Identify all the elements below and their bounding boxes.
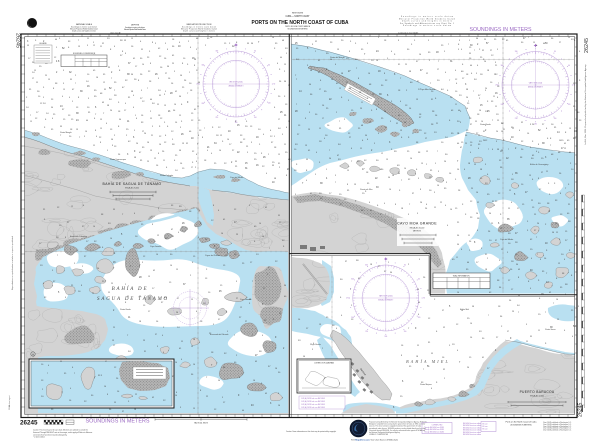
svg-text:13: 13 <box>416 99 418 101</box>
svg-text:56: 56 <box>552 232 554 234</box>
svg-text:18: 18 <box>468 163 470 165</box>
svg-text:14: 14 <box>484 61 486 63</box>
svg-text:3: 3 <box>335 175 336 177</box>
svg-text:18: 18 <box>134 409 136 411</box>
svg-text:50: 50 <box>309 84 311 86</box>
svg-text:16: 16 <box>85 131 87 133</box>
svg-text:25: 25 <box>465 143 467 145</box>
svg-text:60: 60 <box>268 64 270 66</box>
svg-text:29: 29 <box>512 311 514 313</box>
svg-text:20: 20 <box>144 133 146 135</box>
svg-text:3: 3 <box>438 171 439 173</box>
svg-text:58: 58 <box>480 169 482 171</box>
svg-text:90: 90 <box>423 298 425 300</box>
svg-text:7: 7 <box>335 182 336 184</box>
svg-text:Cayo Moa Grande: Cayo Moa Grande <box>420 89 435 91</box>
svg-text:58: 58 <box>274 178 276 180</box>
svg-text:26245: 26245 <box>584 38 590 53</box>
svg-text:8: 8 <box>395 204 396 206</box>
svg-text:11: 11 <box>468 235 470 237</box>
svg-text:Soundings in meters scale datu: Soundings in meters scale datum <box>403 24 452 27</box>
svg-text:57: 57 <box>507 331 509 333</box>
svg-text:32: 32 <box>482 50 484 52</box>
svg-text:5: 5 <box>107 150 108 152</box>
svg-text:13: 13 <box>337 49 339 51</box>
svg-text:11: 11 <box>360 148 362 150</box>
svg-text:26245: 26245 <box>15 33 21 48</box>
svg-text:6: 6 <box>178 232 179 234</box>
svg-text:10: 10 <box>219 150 221 152</box>
svg-text:3: 3 <box>152 126 153 128</box>
svg-text:37: 37 <box>155 334 157 336</box>
svg-text:16: 16 <box>368 73 370 75</box>
svg-text:PORTS ON THE NORTH COAST OF CU: PORTS ON THE NORTH COAST OF CUBA <box>252 20 350 26</box>
svg-text:32: 32 <box>264 320 266 322</box>
svg-text:15: 15 <box>100 128 102 130</box>
svg-text:11: 11 <box>503 129 505 131</box>
svg-text:48: 48 <box>361 125 363 127</box>
svg-text:40: 40 <box>470 65 472 67</box>
svg-text:18: 18 <box>417 289 419 291</box>
svg-text:2: 2 <box>315 51 316 53</box>
svg-text:30: 30 <box>284 285 286 287</box>
svg-text:29: 29 <box>147 161 149 163</box>
svg-text:37: 37 <box>177 298 179 300</box>
svg-text:240: 240 <box>201 103 204 105</box>
svg-text:26245: 26245 <box>20 420 38 427</box>
svg-text:2: 2 <box>322 348 323 350</box>
svg-text:46: 46 <box>404 122 406 124</box>
svg-text:40: 40 <box>150 99 152 101</box>
svg-text:36: 36 <box>457 244 459 246</box>
svg-text:17: 17 <box>191 167 193 169</box>
svg-text:120: 120 <box>268 103 271 105</box>
svg-text:8: 8 <box>125 53 126 55</box>
svg-text:10: 10 <box>437 185 439 187</box>
svg-text:6: 6 <box>564 259 565 261</box>
svg-text:29: 29 <box>360 108 362 110</box>
svg-text:6: 6 <box>572 336 573 338</box>
svg-text:12: 12 <box>71 206 73 208</box>
svg-text:8: 8 <box>420 189 421 191</box>
svg-text:14: 14 <box>93 226 95 228</box>
svg-text:35: 35 <box>530 336 532 338</box>
svg-text:4: 4 <box>531 258 532 260</box>
svg-text:42: 42 <box>152 397 154 399</box>
svg-text:22: 22 <box>135 394 137 396</box>
svg-text:23: 23 <box>557 319 559 321</box>
svg-text:8: 8 <box>152 224 153 226</box>
svg-text:16: 16 <box>470 323 472 325</box>
svg-text:Ports on the North Coast of Cu: Ports on the North Coast of Cuba <box>506 421 538 424</box>
svg-text:6: 6 <box>431 388 432 390</box>
svg-text:(continued on chart 26240): (continued on chart 26240) <box>398 31 419 34</box>
svg-text:10: 10 <box>548 211 550 213</box>
svg-text:27: 27 <box>245 321 247 323</box>
svg-text:18: 18 <box>384 111 386 113</box>
svg-text:22: 22 <box>440 202 442 204</box>
svg-text:45: 45 <box>265 393 267 395</box>
svg-text:PUERTO BARACOA: PUERTO BARACOA <box>520 390 555 394</box>
svg-text:18: 18 <box>487 70 489 72</box>
svg-text:3: 3 <box>374 143 375 145</box>
svg-text:18: 18 <box>485 269 487 271</box>
svg-text:12: 12 <box>220 135 222 137</box>
svg-text:30: 30 <box>254 50 256 52</box>
svg-text:6: 6 <box>134 213 135 215</box>
svg-text:14: 14 <box>110 238 112 240</box>
svg-text:27: 27 <box>412 133 414 135</box>
svg-text:12: 12 <box>157 235 159 237</box>
svg-text:90: 90 <box>273 84 275 86</box>
svg-text:30: 30 <box>390 272 392 274</box>
svg-text:2: 2 <box>487 258 488 260</box>
svg-text:14: 14 <box>457 292 459 294</box>
svg-text:5: 5 <box>326 169 327 171</box>
svg-text:6: 6 <box>114 46 115 48</box>
svg-text:55: 55 <box>372 94 374 96</box>
svg-text:56: 56 <box>349 88 351 90</box>
svg-text:36: 36 <box>476 38 478 40</box>
svg-text:32: 32 <box>477 202 479 204</box>
svg-text:3: 3 <box>165 91 166 93</box>
svg-text:5: 5 <box>469 40 470 42</box>
svg-text:41: 41 <box>310 193 312 195</box>
svg-text:4: 4 <box>207 150 208 152</box>
svg-text:Bahía Miel: Bahía Miel <box>460 309 470 311</box>
svg-text:42: 42 <box>153 270 155 272</box>
svg-text:12: 12 <box>154 158 156 160</box>
svg-text:ESCALA 1:12,500: ESCALA 1:12,500 <box>530 395 544 398</box>
svg-text:44: 44 <box>242 410 244 412</box>
svg-text:15: 15 <box>191 299 193 301</box>
svg-text:METROS: METROS <box>413 231 421 233</box>
svg-text:4: 4 <box>316 152 317 154</box>
svg-text:3: 3 <box>93 42 94 44</box>
svg-text:6: 6 <box>492 149 493 151</box>
svg-text:4: 4 <box>470 152 471 154</box>
svg-text:16: 16 <box>174 104 176 106</box>
svg-text:12: 12 <box>103 82 105 84</box>
svg-text:51: 51 <box>478 135 480 137</box>
svg-text:3: 3 <box>222 397 223 399</box>
svg-text:27: 27 <box>490 50 492 52</box>
svg-text:3: 3 <box>378 104 379 106</box>
svg-text:37: 37 <box>122 411 124 413</box>
svg-text:6: 6 <box>464 169 465 171</box>
svg-text:8: 8 <box>112 145 113 147</box>
svg-text:43: 43 <box>518 269 520 271</box>
svg-text:9: 9 <box>476 73 477 75</box>
svg-text:45: 45 <box>569 152 571 154</box>
svg-text:12: 12 <box>429 177 431 179</box>
svg-text:7: 7 <box>488 315 489 317</box>
svg-text:8: 8 <box>202 137 203 139</box>
svg-text:BAHÍA DE SAGUA DE TÁNAMO: BAHÍA DE SAGUA DE TÁNAMO <box>103 182 162 186</box>
svg-text:15: 15 <box>48 79 50 81</box>
svg-text:42: 42 <box>265 207 267 209</box>
svg-text:15: 15 <box>100 119 102 121</box>
svg-text:45: 45 <box>564 143 566 145</box>
svg-text:7: 7 <box>474 50 475 52</box>
svg-text:57: 57 <box>442 310 444 312</box>
svg-text:SAGUA DE TÁNAMO: SAGUA DE TÁNAMO <box>97 296 169 302</box>
svg-text:42: 42 <box>318 72 320 74</box>
svg-text:58: 58 <box>107 105 109 107</box>
svg-text:38: 38 <box>310 70 312 72</box>
svg-text:7: 7 <box>47 373 48 375</box>
svg-text:58: 58 <box>341 73 343 75</box>
svg-text:8: 8 <box>65 297 66 299</box>
svg-text:13: 13 <box>182 143 184 145</box>
svg-text:11: 11 <box>361 102 363 104</box>
svg-text:3: 3 <box>497 49 498 51</box>
svg-text:15: 15 <box>533 42 535 44</box>
svg-text:11: 11 <box>284 144 286 146</box>
svg-text:3: 3 <box>312 349 313 351</box>
svg-text:2: 2 <box>444 378 445 380</box>
svg-text:12: 12 <box>240 307 242 309</box>
svg-text:35: 35 <box>104 89 106 91</box>
svg-text:6: 6 <box>181 359 182 361</box>
svg-text:Punta Mangle: Punta Mangle <box>60 131 72 134</box>
svg-text:30: 30 <box>516 264 518 266</box>
svg-text:(Joins inset A): (Joins inset A) <box>110 31 121 34</box>
svg-text:2: 2 <box>336 112 337 114</box>
svg-text:6: 6 <box>369 202 370 204</box>
svg-text:9: 9 <box>141 90 142 92</box>
svg-text:25: 25 <box>484 39 486 41</box>
svg-text:25: 25 <box>45 75 47 77</box>
svg-text:35: 35 <box>141 49 143 51</box>
svg-text:9: 9 <box>165 43 166 45</box>
svg-text:6: 6 <box>461 49 462 51</box>
svg-text:Cayos del Puerto: Cayos del Puerto <box>205 254 220 257</box>
svg-text:7: 7 <box>437 151 438 153</box>
svg-text:6: 6 <box>133 107 134 109</box>
svg-text:7: 7 <box>488 149 489 151</box>
svg-text:10: 10 <box>466 108 468 110</box>
svg-text:3: 3 <box>158 208 159 210</box>
svg-text:17: 17 <box>105 361 107 363</box>
svg-text:25: 25 <box>471 188 473 190</box>
svg-text:32: 32 <box>315 41 317 43</box>
svg-text:57: 57 <box>541 172 543 174</box>
svg-text:7: 7 <box>438 61 439 63</box>
svg-text:19: 19 <box>421 163 423 165</box>
svg-text:23: 23 <box>143 340 145 342</box>
svg-text:10: 10 <box>481 121 483 123</box>
svg-text:19: 19 <box>76 129 78 131</box>
svg-text:11: 11 <box>92 293 94 295</box>
svg-text:56: 56 <box>303 356 305 358</box>
svg-text:14: 14 <box>104 386 106 388</box>
svg-text:330: 330 <box>215 50 218 52</box>
svg-text:3: 3 <box>213 324 214 326</box>
svg-text:CORRECTION DIAGRAM: CORRECTION DIAGRAM <box>314 362 334 365</box>
svg-text:Punta Soroa: Punta Soroa <box>545 328 556 331</box>
svg-text:13: 13 <box>400 130 402 132</box>
svg-text:52: 52 <box>443 327 445 329</box>
svg-text:4: 4 <box>162 335 163 337</box>
svg-text:4: 4 <box>266 173 267 175</box>
svg-text:15: 15 <box>278 154 280 156</box>
svg-text:6: 6 <box>196 161 197 163</box>
svg-text:MERCATOR PROJECTION: MERCATOR PROJECTION <box>187 23 212 26</box>
svg-text:NATURAL SCALE: NATURAL SCALE <box>76 23 93 26</box>
svg-text:SOUNDINGS IN METERS: SOUNDINGS IN METERS <box>470 27 533 33</box>
svg-text:17: 17 <box>425 138 427 140</box>
svg-text:★ntl MapsDirect.com Your Char: ★ntl MapsDirect.com Your Chart Source of… <box>351 439 398 442</box>
svg-text:9: 9 <box>496 141 497 143</box>
svg-text:26: 26 <box>420 202 422 204</box>
svg-text:NOAA chart agent: NOAA chart agent <box>8 395 11 410</box>
svg-text:CUBA — NORTH COAST: CUBA — NORTH COAST <box>286 15 311 18</box>
svg-text:5: 5 <box>274 136 275 138</box>
svg-text:48: 48 <box>282 40 284 42</box>
svg-text:6: 6 <box>477 230 478 232</box>
svg-text:17: 17 <box>437 69 439 71</box>
svg-text:44: 44 <box>55 39 57 41</box>
svg-text:19: 19 <box>569 128 571 130</box>
svg-text:26: 26 <box>136 143 138 145</box>
svg-text:36: 36 <box>365 135 367 137</box>
svg-text:49: 49 <box>398 173 400 175</box>
svg-text:32: 32 <box>102 43 104 45</box>
svg-text:3: 3 <box>390 121 391 123</box>
svg-text:13: 13 <box>150 150 152 152</box>
svg-text:12: 12 <box>470 145 472 147</box>
svg-text:8: 8 <box>305 118 306 120</box>
svg-text:20: 20 <box>485 88 487 90</box>
svg-text:15: 15 <box>34 70 36 72</box>
svg-text:27: 27 <box>165 73 167 75</box>
svg-text:Punta Gorda: Punta Gorda <box>480 123 491 126</box>
svg-text:41: 41 <box>482 357 484 359</box>
svg-text:150: 150 <box>254 117 257 119</box>
svg-text:38: 38 <box>472 306 474 308</box>
svg-text:Punta Cabagán: Punta Cabagán <box>160 174 173 177</box>
svg-text:7: 7 <box>147 88 148 90</box>
svg-text:23: 23 <box>370 210 372 212</box>
svg-text:Ensenada Cabonico: Ensenada Cabonico <box>70 236 87 238</box>
svg-text:4: 4 <box>70 388 71 390</box>
svg-text:5: 5 <box>378 37 379 39</box>
svg-text:Cayo Grande: Cayo Grande <box>240 299 251 301</box>
svg-text:5: 5 <box>435 163 436 165</box>
svg-text:25: 25 <box>172 63 174 65</box>
svg-text:CORRECTED: CORRECTED <box>432 425 443 427</box>
svg-text:9: 9 <box>155 43 156 45</box>
svg-text:9: 9 <box>367 43 368 45</box>
svg-text:38: 38 <box>131 91 133 93</box>
svg-text:21: 21 <box>436 123 438 125</box>
svg-text:7: 7 <box>473 91 474 93</box>
svg-text:2: 2 <box>189 72 190 74</box>
svg-text:37: 37 <box>345 261 347 263</box>
svg-text:37: 37 <box>378 266 380 268</box>
svg-text:8: 8 <box>560 193 561 195</box>
svg-text:210: 210 <box>215 117 218 119</box>
svg-text:36: 36 <box>131 74 133 76</box>
svg-text:4: 4 <box>324 138 325 140</box>
svg-text:Puerto de Moa: Puerto de Moa <box>360 188 372 191</box>
svg-text:60: 60 <box>418 279 420 281</box>
svg-text:17: 17 <box>32 78 34 80</box>
svg-text:15: 15 <box>176 269 178 271</box>
svg-text:16: 16 <box>331 79 333 81</box>
svg-text:6: 6 <box>384 203 385 205</box>
svg-text:11: 11 <box>538 330 540 332</box>
svg-text:7: 7 <box>498 83 499 85</box>
svg-text:16: 16 <box>275 368 277 370</box>
svg-text:WEST INDIES: WEST INDIES <box>292 13 304 15</box>
svg-text:Bahía de Yamanigüey: Bahía de Yamanigüey <box>530 164 549 166</box>
svg-text:54: 54 <box>218 380 220 382</box>
svg-text:55: 55 <box>431 353 433 355</box>
svg-text:56: 56 <box>198 82 200 84</box>
svg-text:13: 13 <box>319 324 321 326</box>
svg-text:5: 5 <box>72 101 73 103</box>
svg-text:NAUTICAL MILES: NAUTICAL MILES <box>194 422 209 425</box>
svg-text:7: 7 <box>545 312 546 314</box>
svg-text:26: 26 <box>272 37 274 39</box>
svg-text:16: 16 <box>147 142 149 144</box>
svg-text:A: A <box>32 352 34 356</box>
svg-text:22: 22 <box>531 200 533 202</box>
svg-text:3: 3 <box>428 40 429 42</box>
svg-text:44: 44 <box>543 43 545 45</box>
svg-text:21: 21 <box>151 135 153 137</box>
svg-text:39: 39 <box>306 159 308 161</box>
svg-text:10: 10 <box>170 265 172 267</box>
svg-text:8: 8 <box>81 285 82 287</box>
svg-text:40: 40 <box>467 262 469 264</box>
svg-text:8: 8 <box>226 311 227 313</box>
svg-text:35: 35 <box>278 215 280 217</box>
svg-text:15: 15 <box>63 89 65 91</box>
svg-text:2: 2 <box>388 262 389 264</box>
svg-text:22: 22 <box>60 361 62 363</box>
svg-text:5: 5 <box>123 247 124 249</box>
svg-text:30: 30 <box>554 51 556 53</box>
svg-text:39: 39 <box>60 126 62 128</box>
svg-text:9: 9 <box>63 70 64 72</box>
svg-text:300: 300 <box>501 65 504 67</box>
svg-text:2: 2 <box>350 289 351 291</box>
svg-text:210: 210 <box>515 118 518 120</box>
svg-text:10: 10 <box>476 192 478 194</box>
svg-text:15: 15 <box>284 64 286 66</box>
svg-text:50: 50 <box>330 59 332 61</box>
svg-text:3: 3 <box>142 262 143 264</box>
svg-text:5: 5 <box>286 53 287 55</box>
svg-text:39: 39 <box>469 53 471 55</box>
svg-text:11: 11 <box>495 106 497 108</box>
svg-text:9: 9 <box>180 127 181 129</box>
svg-text:7: 7 <box>74 373 75 375</box>
svg-text:19: 19 <box>386 159 388 161</box>
svg-text:120: 120 <box>568 104 571 106</box>
svg-text:7: 7 <box>78 40 79 42</box>
svg-text:9: 9 <box>557 159 558 161</box>
svg-text:5: 5 <box>227 331 228 333</box>
svg-text:14: 14 <box>227 139 229 141</box>
svg-text:16: 16 <box>96 77 98 79</box>
svg-text:16: 16 <box>253 380 255 382</box>
svg-text:ESCALA 1:25,000: ESCALA 1:25,000 <box>125 187 139 190</box>
svg-text:38: 38 <box>409 71 411 73</box>
